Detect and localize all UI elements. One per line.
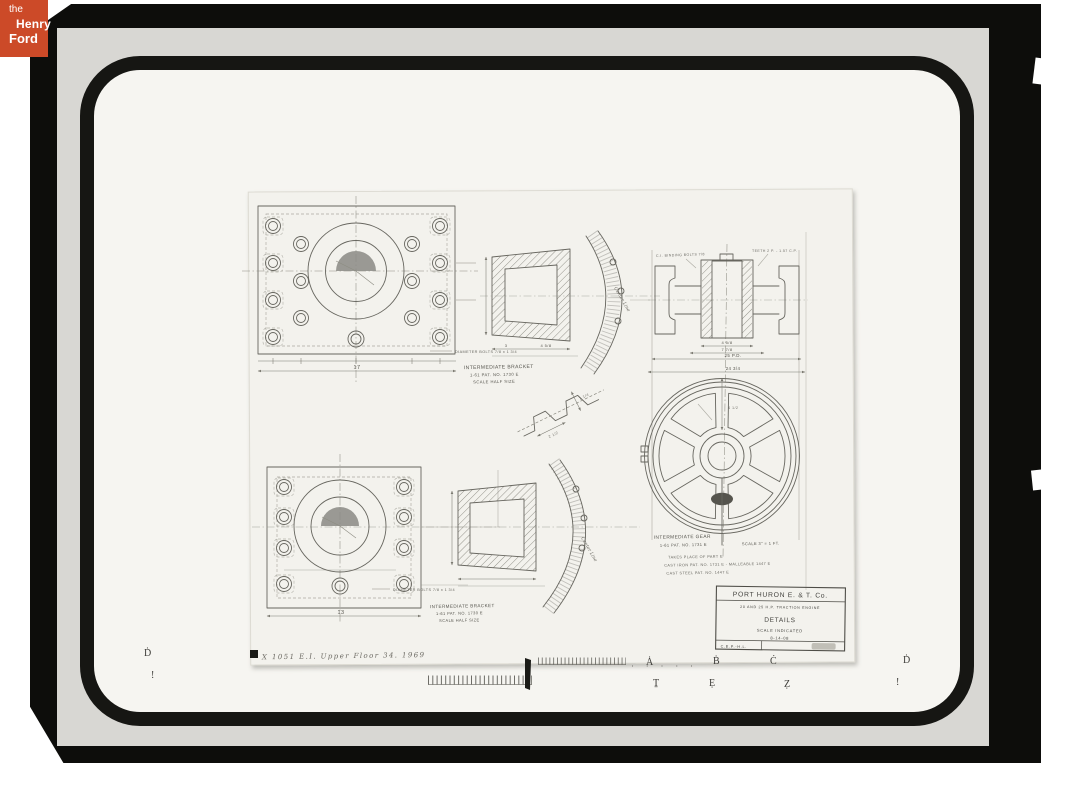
fiducial-mark: ! [151,670,154,681]
bracket-top-scale: SCALE HALF SIZE [473,379,515,385]
bracket-bottom-scale: SCALE HALF SIZE [439,617,480,623]
gear-note3: CAST STEEL PAT. NO. 1447 E [666,570,729,575]
dim-tooth-depth: 1 1/4 [578,393,589,401]
view-bracket-top-front: 17 [242,196,478,382]
title-details: DETAILS [764,617,796,624]
henry-ford-logo: the Henry Ford [0,0,48,57]
dim-bracket-top-width: 17 [354,365,361,371]
label-bolts-top: DIAMETER BOLTS 7/8 x 1 3/4 [430,350,517,354]
fiducial-mark: Ȧ [646,657,653,668]
dim-wheel-spoke: 4 1/2 [728,406,738,410]
dim-bracket-bottom-width: 13 [338,610,345,616]
fiducial-mark: Ẓ [784,679,790,690]
dim-gear-od: 24 3/4 [726,366,741,371]
dim-section-width: 4 5/8 [541,343,552,348]
fiducial-mark: ! [896,677,899,688]
label-bracket-bottom: INTERMEDIATE BRACKET 1-61 PAT. NO. 1730 … [430,603,495,623]
view-gear-wheel: 4 1/2 [641,378,800,545]
fiducial-mark: Ċ [770,656,777,667]
dim-gear-web: 7 7/8 [722,347,733,352]
bolts-note-bottom: DIAMETER BOLTS 7/8 x 1 3/4 [393,588,455,592]
archival-photo-viewer: the Henry Ford Ḋ ! Ȧ Ḃ Ċ Ḋ Ṯ Ẹ Ẓ ! X 105… [0,0,1067,800]
dim-gear-hub: 4 5/8 [722,340,733,345]
bracket-top-title: INTERMEDIATE BRACKET [464,364,534,371]
title-initials: C.E.P.-H.L. [721,645,747,649]
label-bracket-top: INTERMEDIATE BRACKET 1-61 PAT. NO. 1730 … [464,364,534,385]
bracket-bottom-ref: 1-61 PAT. NO. 1730 E [436,610,483,616]
dim-section-depth: 3 [505,343,508,348]
scale-ruler [428,658,700,690]
label-bolts-bottom: DIAMETER BOLTS 7/8 x 1 3/4 [372,588,455,592]
gear-note-right: TEETH 2 P. - 1.57 C.P. [752,249,797,253]
dim-tooth-pitch: 2 1/2 [548,431,559,439]
bolts-note-top: DIAMETER BOLTS 7/8 x 1 3/4 [455,350,517,354]
dim-gear-pd: 25 P.D. [725,353,742,358]
gear-scale: SCALE 3" = 1 FT. [742,541,780,547]
label-gear: INTERMEDIATE GEAR 1-61 PAT. NO. 1731 E S… [654,533,780,576]
logo-henry: Henry [16,17,51,31]
logo-ford: Ford [9,31,38,46]
title-scale: SCALE INDICATED [757,628,803,634]
gear-title: INTERMEDIATE GEAR [654,534,711,541]
fiducial-mark: Ḋ [903,655,910,666]
gear-note-left: C.I. BINDING BOLTS 7/8 [656,252,705,258]
view-bracket-top-section: 3 4 5/8 [480,249,660,356]
gear-ref: 1-61 PAT. NO. 1731 E [660,542,707,548]
view-bracket-bottom-section [452,483,545,586]
gear-note1: TAKES PLACE OF PART E [668,555,723,560]
title-date: 8-14-08 [770,635,789,640]
fiducial-mark: Ḋ [144,648,151,659]
fiducial-mark: Ṯ [653,678,659,689]
title-company: PORT HURON E. & T. Co. [733,591,828,599]
fiducial-mark: Ḃ [713,656,720,667]
title-block: PORT HURON E. & T. Co. 20 AND 25 H.P. TR… [716,586,846,651]
gear-note2: CAST IRON PAT. NO. 1731 E - MALLEABLE 14… [664,562,770,568]
fiducial-mark: Ẹ [709,678,715,689]
detail-gear-teeth: 2 1/2 1 1/4 [512,379,613,451]
bracket-bottom-title: INTERMEDIATE BRACKET [430,603,495,609]
title-subtitle: 20 AND 25 H.P. TRACTION ENGINE [740,605,820,610]
bracket-top-ref: 1-61 PAT. NO. 1730 E [470,372,519,378]
view-rim-segment-top: Center Line [581,231,650,374]
view-rim-segment-bottom: Center Line [543,460,598,613]
technical-drawing-svg: 17 3 4 5/8 Center Line [0,0,1067,800]
film-defect-mark [250,650,258,658]
logo-the: the [9,4,23,15]
